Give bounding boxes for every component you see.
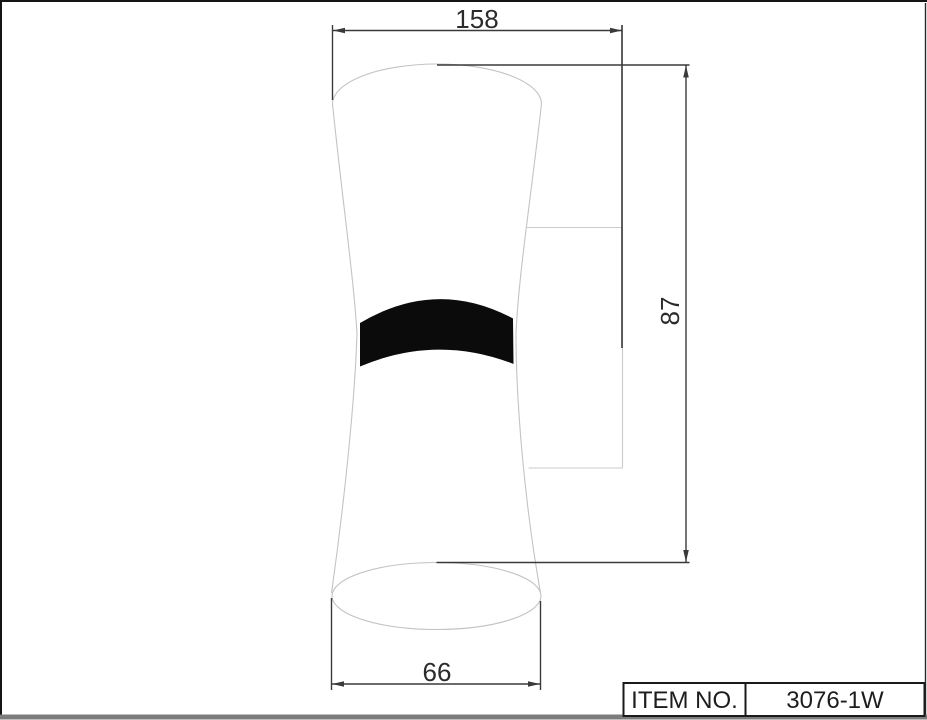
item-no-value: 3076-1W xyxy=(786,687,884,714)
drawing-canvas: 158 87 66 ITEM NO. 3076-1W xyxy=(0,0,927,720)
dimension-66: 66 xyxy=(332,598,541,690)
dim-66-arrow-right xyxy=(528,681,540,687)
lamp-bottom-rim-ellipse xyxy=(332,563,541,630)
dim-158-label: 158 xyxy=(455,4,498,34)
lamp-lower-right-profile xyxy=(516,333,541,593)
dimension-158: 158 xyxy=(333,4,623,348)
dimension-drawing-svg: 158 87 66 ITEM NO. 3076-1W xyxy=(0,0,927,720)
dim-87-arrow-bottom xyxy=(683,550,689,562)
dim-87-arrow-top xyxy=(683,66,689,78)
dim-158-arrow-right xyxy=(610,28,622,34)
lamp-shade xyxy=(332,64,542,630)
dim-87-label: 87 xyxy=(655,297,685,326)
wall-mount-bracket xyxy=(527,228,623,469)
item-no-label: ITEM NO. xyxy=(631,687,738,714)
lamp-upper-left-profile xyxy=(333,104,358,333)
drawing-frame xyxy=(0,0,927,720)
lamp-lower-left-profile xyxy=(332,333,358,593)
diffuser-band xyxy=(360,299,514,366)
dim-66-label: 66 xyxy=(423,657,452,687)
lamp-top-rim-arc xyxy=(333,64,542,104)
lamp-upper-right-profile xyxy=(516,104,542,333)
dim-66-arrow-left xyxy=(332,681,344,687)
dim-158-arrow-left xyxy=(333,28,345,34)
title-block: ITEM NO. 3076-1W xyxy=(624,683,925,716)
